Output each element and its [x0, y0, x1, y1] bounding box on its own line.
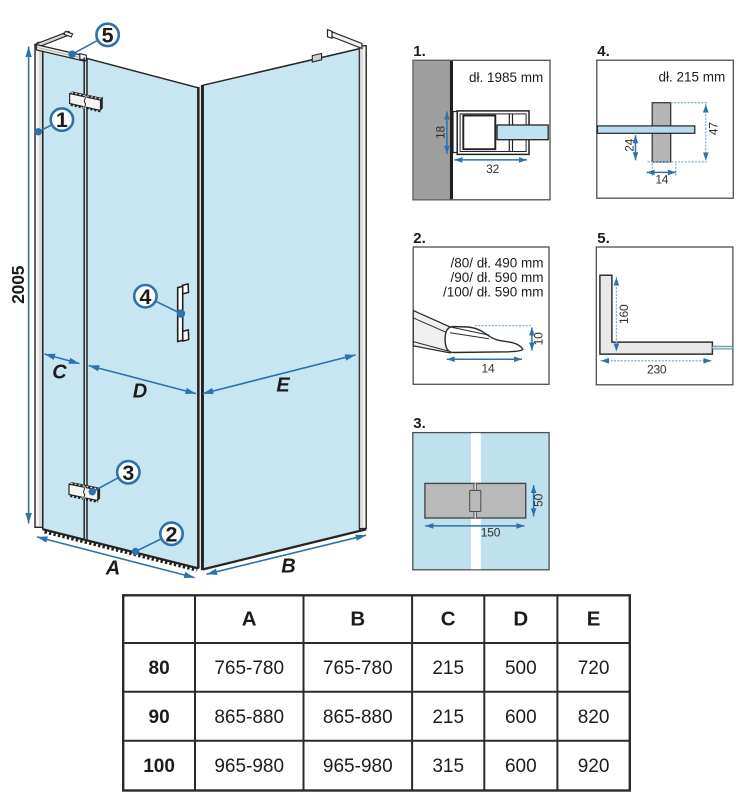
- svg-text:D: D: [513, 608, 528, 631]
- svg-text:4: 4: [139, 285, 151, 309]
- svg-text:215: 215: [432, 658, 464, 679]
- svg-text:D: D: [133, 381, 147, 403]
- svg-text:3.: 3.: [413, 415, 426, 432]
- svg-text:14: 14: [482, 362, 495, 376]
- svg-text:/90/ dł. 590 mm: /90/ dł. 590 mm: [450, 270, 543, 285]
- svg-text:3: 3: [122, 461, 134, 485]
- svg-text:47: 47: [707, 122, 721, 135]
- svg-text:2005: 2005: [8, 265, 28, 304]
- svg-text:600: 600: [505, 756, 537, 777]
- svg-text:765-780: 765-780: [214, 658, 284, 679]
- svg-text:18: 18: [434, 126, 448, 139]
- svg-text:160: 160: [617, 304, 631, 324]
- svg-text:600: 600: [505, 707, 537, 728]
- svg-text:215: 215: [432, 707, 464, 728]
- svg-text:2.: 2.: [413, 230, 426, 247]
- svg-text:865-880: 865-880: [214, 707, 284, 728]
- svg-text:4.: 4.: [597, 43, 610, 60]
- svg-text:2: 2: [166, 522, 178, 546]
- svg-text:E: E: [587, 608, 601, 631]
- svg-text:720: 720: [578, 658, 610, 679]
- svg-text:24: 24: [622, 138, 636, 151]
- svg-text:90: 90: [149, 707, 170, 728]
- svg-text:820: 820: [578, 707, 610, 728]
- svg-text:1: 1: [56, 108, 68, 132]
- svg-text:920: 920: [578, 756, 610, 777]
- svg-text:965-980: 965-980: [323, 756, 393, 777]
- svg-text:14: 14: [655, 173, 668, 187]
- svg-text:A: A: [105, 558, 120, 580]
- svg-text:50: 50: [532, 493, 546, 506]
- svg-text:C: C: [441, 608, 456, 631]
- svg-text:1.: 1.: [413, 43, 426, 60]
- svg-text:765-780: 765-780: [323, 658, 393, 679]
- svg-text:80: 80: [149, 658, 170, 679]
- svg-text:500: 500: [505, 658, 537, 679]
- svg-text:C: C: [52, 362, 67, 384]
- svg-text:230: 230: [647, 363, 667, 377]
- svg-text:5.: 5.: [597, 230, 610, 247]
- svg-text:E: E: [276, 375, 290, 397]
- svg-text:A: A: [242, 608, 257, 631]
- svg-text:dł. 215 mm: dł. 215 mm: [659, 70, 726, 85]
- svg-text:5: 5: [102, 24, 114, 48]
- svg-text:/100/ dł. 590 mm: /100/ dł. 590 mm: [443, 285, 544, 300]
- svg-text:/80/ dł. 490 mm: /80/ dł. 490 mm: [450, 256, 543, 271]
- svg-text:B: B: [281, 556, 295, 578]
- svg-text:865-880: 865-880: [323, 707, 393, 728]
- svg-text:dł. 1985 mm: dł. 1985 mm: [469, 70, 543, 85]
- svg-text:32: 32: [486, 162, 499, 176]
- svg-text:B: B: [350, 608, 365, 631]
- svg-text:100: 100: [143, 756, 175, 777]
- svg-text:965-980: 965-980: [214, 756, 284, 777]
- svg-text:315: 315: [432, 756, 464, 777]
- svg-text:10: 10: [531, 332, 545, 345]
- svg-text:150: 150: [481, 526, 501, 540]
